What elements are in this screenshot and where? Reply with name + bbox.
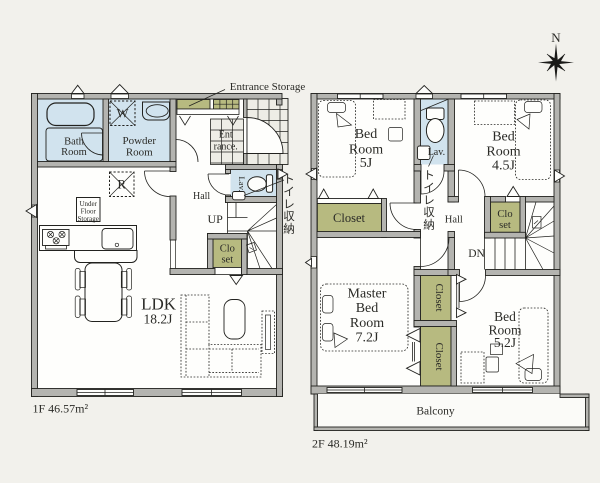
svg-text:N: N xyxy=(551,30,561,45)
svg-text:Hall: Hall xyxy=(445,215,463,226)
svg-text:Room: Room xyxy=(126,147,153,159)
svg-text:1F 46.57m²: 1F 46.57m² xyxy=(33,402,89,416)
svg-text:イ: イ xyxy=(423,182,435,194)
svg-text:Entrance Storage: Entrance Storage xyxy=(230,81,306,93)
svg-text:18.2J: 18.2J xyxy=(144,312,173,327)
svg-text:レ: レ xyxy=(423,195,435,207)
svg-text:Master: Master xyxy=(348,287,387,302)
svg-text:Bed: Bed xyxy=(492,130,515,145)
svg-text:収: 収 xyxy=(283,210,295,223)
svg-text:7.2J: 7.2J xyxy=(356,331,380,346)
svg-text:Closet: Closet xyxy=(433,283,445,311)
svg-text:イ: イ xyxy=(283,186,295,198)
svg-text:Closet: Closet xyxy=(433,342,445,370)
svg-text:納: 納 xyxy=(283,223,295,236)
svg-text:納: 納 xyxy=(423,219,435,232)
svg-text:2F 48.19m²: 2F 48.19m² xyxy=(312,437,368,451)
svg-text:Hall: Hall xyxy=(193,191,210,202)
svg-text:Powder: Powder xyxy=(122,135,156,147)
svg-text:Ent: Ent xyxy=(219,130,233,141)
svg-text:Closet: Closet xyxy=(333,211,365,225)
svg-text:ト: ト xyxy=(423,170,435,182)
svg-text:Storage: Storage xyxy=(78,215,99,223)
svg-text:5J: 5J xyxy=(360,156,373,171)
svg-text:rance.: rance. xyxy=(214,142,238,153)
svg-text:W: W xyxy=(117,107,129,121)
svg-text:Bed: Bed xyxy=(355,127,378,142)
svg-text:Bath: Bath xyxy=(64,137,85,148)
svg-text:Room: Room xyxy=(350,316,384,331)
svg-text:収: 収 xyxy=(423,206,435,219)
svg-text:UP: UP xyxy=(208,212,224,226)
svg-text:Lav.: Lav. xyxy=(237,176,247,191)
svg-text:レ: レ xyxy=(283,199,295,211)
svg-text:set: set xyxy=(499,220,511,231)
svg-text:Balcony: Balcony xyxy=(416,406,455,418)
svg-text:Lav.: Lav. xyxy=(428,147,445,158)
svg-text:Room: Room xyxy=(486,145,520,160)
svg-text:4.5J: 4.5J xyxy=(492,159,516,174)
svg-text:Clo: Clo xyxy=(220,244,235,255)
svg-text:5.2J: 5.2J xyxy=(494,335,516,350)
svg-text:R: R xyxy=(118,178,127,192)
svg-text:ト: ト xyxy=(283,174,295,186)
svg-text:DN: DN xyxy=(468,248,485,260)
svg-text:set: set xyxy=(221,255,233,266)
svg-text:Room: Room xyxy=(61,147,87,158)
svg-text:Bed: Bed xyxy=(356,301,379,316)
svg-text:Clo: Clo xyxy=(497,209,512,220)
